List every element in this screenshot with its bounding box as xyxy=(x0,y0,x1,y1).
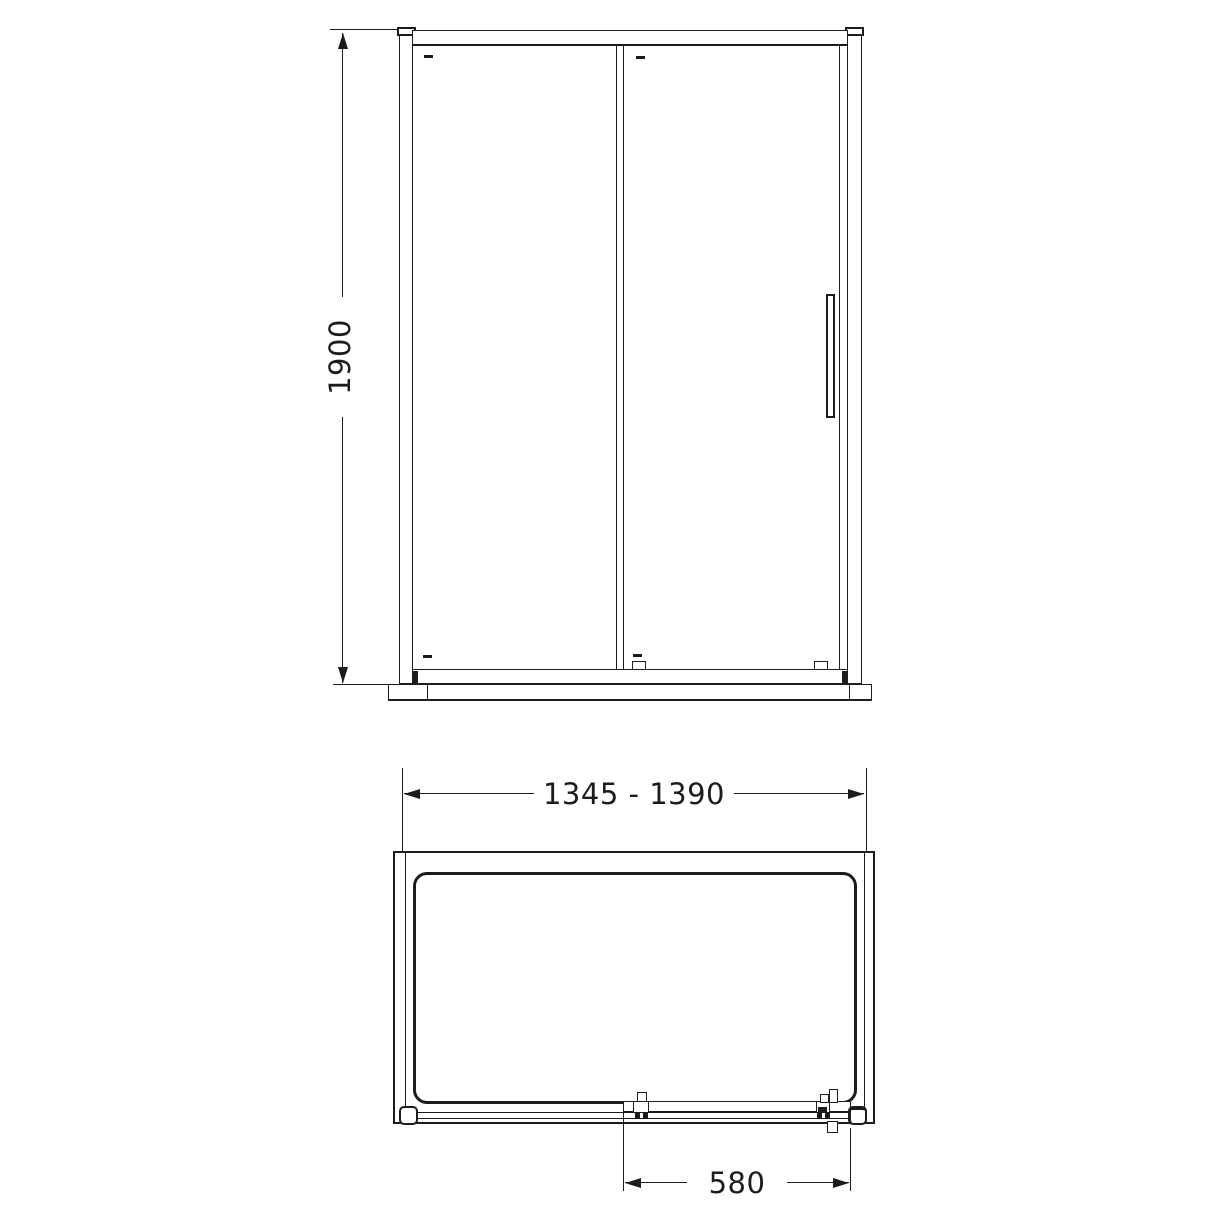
plan-corner-bracket-right xyxy=(848,1106,867,1125)
width-dim-arrow-left xyxy=(404,789,420,799)
width-dim-label: 1345 - 1390 xyxy=(534,775,734,813)
right-wall-profile xyxy=(847,28,862,684)
left-wall-profile xyxy=(399,28,413,684)
plan-wall-inner-line-left xyxy=(405,853,406,1122)
bottom-rail-end-cap-left xyxy=(413,671,418,683)
fitting-tick-bottom-left xyxy=(423,655,432,658)
opening-dim-label: 580 xyxy=(687,1164,787,1202)
opening-dim-arrow-left xyxy=(625,1178,641,1188)
fitting-tick-bottom-right xyxy=(633,654,642,657)
opening-dim-arrow-right xyxy=(833,1178,849,1188)
plan-roller-left-foot-b xyxy=(643,1112,648,1118)
height-dim-extension-top xyxy=(330,29,398,30)
plan-handle-side-tab xyxy=(820,1094,829,1103)
panel-divider-line-left xyxy=(616,46,617,669)
bottom-rail xyxy=(412,669,848,685)
width-dim-extension-left xyxy=(402,768,403,851)
front-elevation-view: 1900 xyxy=(0,0,1214,760)
bottom-rail-end-cap-right xyxy=(842,671,847,683)
opening-dim-extension-left xyxy=(623,1112,624,1191)
plan-roller-right-foot-b xyxy=(825,1112,830,1118)
opening-dim-extension-right xyxy=(850,1128,851,1191)
plan-handle-top xyxy=(829,1089,838,1103)
shower-tray-joint-left xyxy=(427,685,428,700)
plan-view: 1345 - 1390 580 xyxy=(0,760,1214,1214)
plan-roller-left-foot-a xyxy=(635,1112,640,1118)
width-dim-arrow-right xyxy=(848,789,864,799)
height-dim-arrow-bottom xyxy=(338,667,348,683)
plan-tray-inner-edge xyxy=(413,872,857,1104)
plan-track-line-lower xyxy=(406,1118,864,1119)
plan-roller-right-foot-a xyxy=(817,1112,822,1118)
top-rail xyxy=(412,30,848,46)
plan-handle-bottom xyxy=(827,1121,838,1133)
plan-corner-bracket-left xyxy=(399,1106,418,1125)
fitting-tick-top-left xyxy=(424,55,433,58)
door-handle xyxy=(826,294,835,418)
shower-tray-joint-right xyxy=(849,685,850,700)
panel-divider-line-right xyxy=(623,46,624,669)
height-dim-arrow-top xyxy=(338,33,348,49)
plan-wall-inner-line-right xyxy=(864,853,865,1122)
width-dim-extension-right xyxy=(866,768,867,851)
height-dim-label: 1900 xyxy=(320,297,360,417)
shower-door-technical-drawing: 1900 xyxy=(0,0,1214,1214)
fitting-tick-top-right xyxy=(636,56,645,59)
height-dim-extension-bottom xyxy=(333,684,389,685)
shower-tray xyxy=(388,684,872,701)
sliding-panel-right-edge xyxy=(839,46,840,669)
